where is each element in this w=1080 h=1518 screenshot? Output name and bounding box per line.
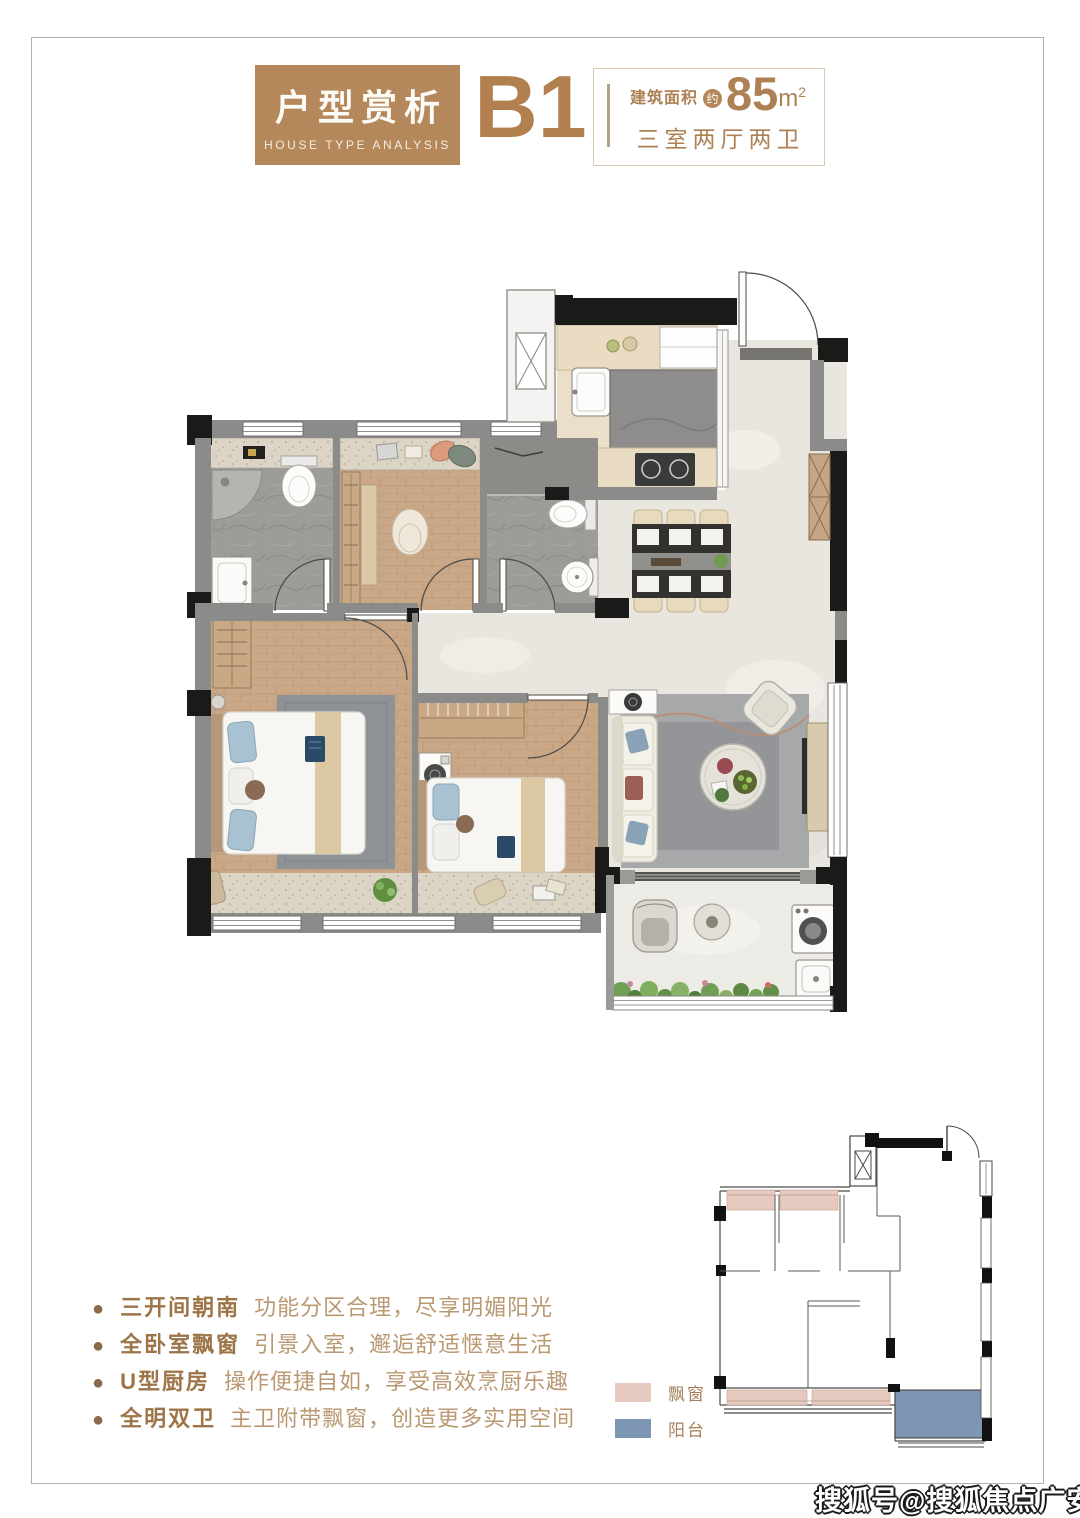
pillow-blue2: [227, 809, 257, 851]
placemat: [637, 576, 659, 592]
page: 户型赏析 HOUSE TYPE ANALYSIS B1 建筑面积 约 85 m2…: [0, 0, 1080, 1518]
room-layout-label: 三室两厅两卫: [618, 120, 818, 154]
bullet-icon: ●: [92, 1372, 104, 1395]
balcony: [610, 875, 847, 1010]
legend-item-balcony: 阳台: [615, 1419, 706, 1438]
legend-label: 飘窗: [668, 1380, 706, 1405]
mini-floorplan: [700, 1113, 1010, 1465]
throw-pillow: [245, 780, 265, 800]
throw-pillow2: [456, 815, 474, 833]
page-subtitle: HOUSE TYPE ANALYSIS: [264, 138, 451, 152]
feature-desc: 功能分区合理，尽享明媚阳光: [254, 1296, 553, 1319]
bed-runner: [315, 712, 341, 854]
fruit-bowl: [733, 770, 757, 794]
feature-lead: U型厨房: [120, 1370, 210, 1393]
study-chair: [392, 509, 428, 555]
kitchen-bowl: [623, 337, 637, 351]
speaker-icon: [624, 693, 642, 711]
feature-item: ● 全卧室飘窗 引景入室，邂逅舒适惬意生活: [92, 1333, 575, 1358]
bed-headboard: [211, 714, 223, 852]
mini-balcony: [895, 1390, 987, 1438]
shower-area: [487, 438, 598, 495]
flowers: [717, 758, 733, 774]
feature-lead: 三开间朝南: [120, 1296, 240, 1319]
placemat: [637, 529, 659, 545]
header-divider: [607, 84, 610, 147]
feature-desc: 主卫附带飘窗，创造更多实用空间: [230, 1407, 575, 1430]
study-room: [340, 437, 480, 611]
feature-lead: 全明双卫: [120, 1407, 216, 1430]
leaf-decor: [715, 788, 729, 802]
stove: [635, 453, 695, 486]
coffee-table: [700, 744, 766, 810]
tv: [802, 738, 807, 814]
master-door: [345, 615, 407, 620]
bed2-tray: [497, 836, 515, 858]
bullet-icon: ●: [92, 1409, 104, 1432]
sofa-pillow-red: [625, 776, 643, 800]
bed2-headboard: [417, 780, 427, 870]
toilet2: [549, 500, 587, 528]
bed-tray: [305, 736, 325, 762]
feature-list: ● 三开间朝南 功能分区合理，尽享明媚阳光 ● 全卧室飘窗 引景入室，邂逅舒适惬…: [92, 1296, 575, 1444]
table-plant: [714, 554, 728, 568]
table-centerpiece: [651, 558, 681, 566]
area-prefix: 建筑面积: [630, 84, 698, 116]
living-room: [609, 677, 829, 868]
feature-desc: 引景入室，邂逅舒适惬意生活: [254, 1333, 553, 1356]
entry-threshold: [740, 348, 812, 360]
bedroom2-bay-window: [418, 873, 598, 913]
mini-entry-wall: [876, 1138, 943, 1148]
bedroom2-door: [528, 695, 588, 700]
legend: 飘窗 阳台: [615, 1383, 706, 1455]
area-unit: m2: [778, 84, 806, 116]
placemat: [701, 576, 723, 592]
lounge-seat: [641, 918, 669, 946]
approx-circle-icon: 约: [703, 89, 722, 108]
feature-item: ● 全明双卫 主卫附带飘窗，创造更多实用空间: [92, 1407, 575, 1432]
master-bedroom: [195, 617, 412, 913]
feature-lead: 全卧室飘窗: [120, 1333, 240, 1356]
balcony-swatch: [615, 1419, 651, 1438]
master-bathroom: [210, 438, 333, 611]
unit-type-label: B1: [468, 52, 593, 162]
tv-console: [807, 723, 829, 831]
second-bedroom: [417, 697, 598, 913]
kitchen-jar: [607, 340, 619, 352]
pillow-blue: [227, 721, 257, 763]
laptop: [376, 443, 397, 460]
placemat: [669, 529, 691, 545]
legend-label: 阳台: [668, 1416, 706, 1441]
feature-desc: 操作便捷自如，享受高效烹厨乐趣: [224, 1370, 569, 1393]
bed2-runner: [521, 778, 545, 872]
toilet: [282, 465, 316, 507]
dining-area: [632, 510, 731, 612]
bullet-icon: ●: [92, 1298, 104, 1321]
main-floorplan: [185, 270, 885, 1020]
study-desk: [361, 485, 377, 585]
second-bathroom: [487, 438, 598, 611]
area-line: 建筑面积 约 85 m2: [618, 72, 818, 116]
kitchen-island: [610, 370, 722, 448]
bullet-icon: ●: [92, 1335, 104, 1358]
entry-door: [739, 272, 746, 346]
feature-item: ● U型厨房 操作便捷自如，享受高效烹厨乐趣: [92, 1370, 575, 1395]
watermark: 搜狐号@搜狐焦点广安站: [815, 1479, 1080, 1518]
pillow2-white: [433, 824, 459, 860]
page-title: 户型赏析: [268, 79, 447, 131]
legend-item-bay-window: 飘窗: [615, 1383, 706, 1402]
feature-item: ● 三开间朝南 功能分区合理，尽享明媚阳光: [92, 1296, 575, 1321]
bedside-lamp: [211, 695, 225, 709]
area-value: 85: [726, 72, 778, 116]
notebook: [405, 446, 422, 458]
placemat: [701, 529, 723, 545]
header-badge: 户型赏析 HOUSE TYPE ANALYSIS: [255, 65, 460, 165]
bay-window-swatch: [615, 1383, 651, 1402]
placemat: [669, 576, 691, 592]
cup: [706, 916, 718, 928]
pillow2-blue: [433, 784, 459, 820]
